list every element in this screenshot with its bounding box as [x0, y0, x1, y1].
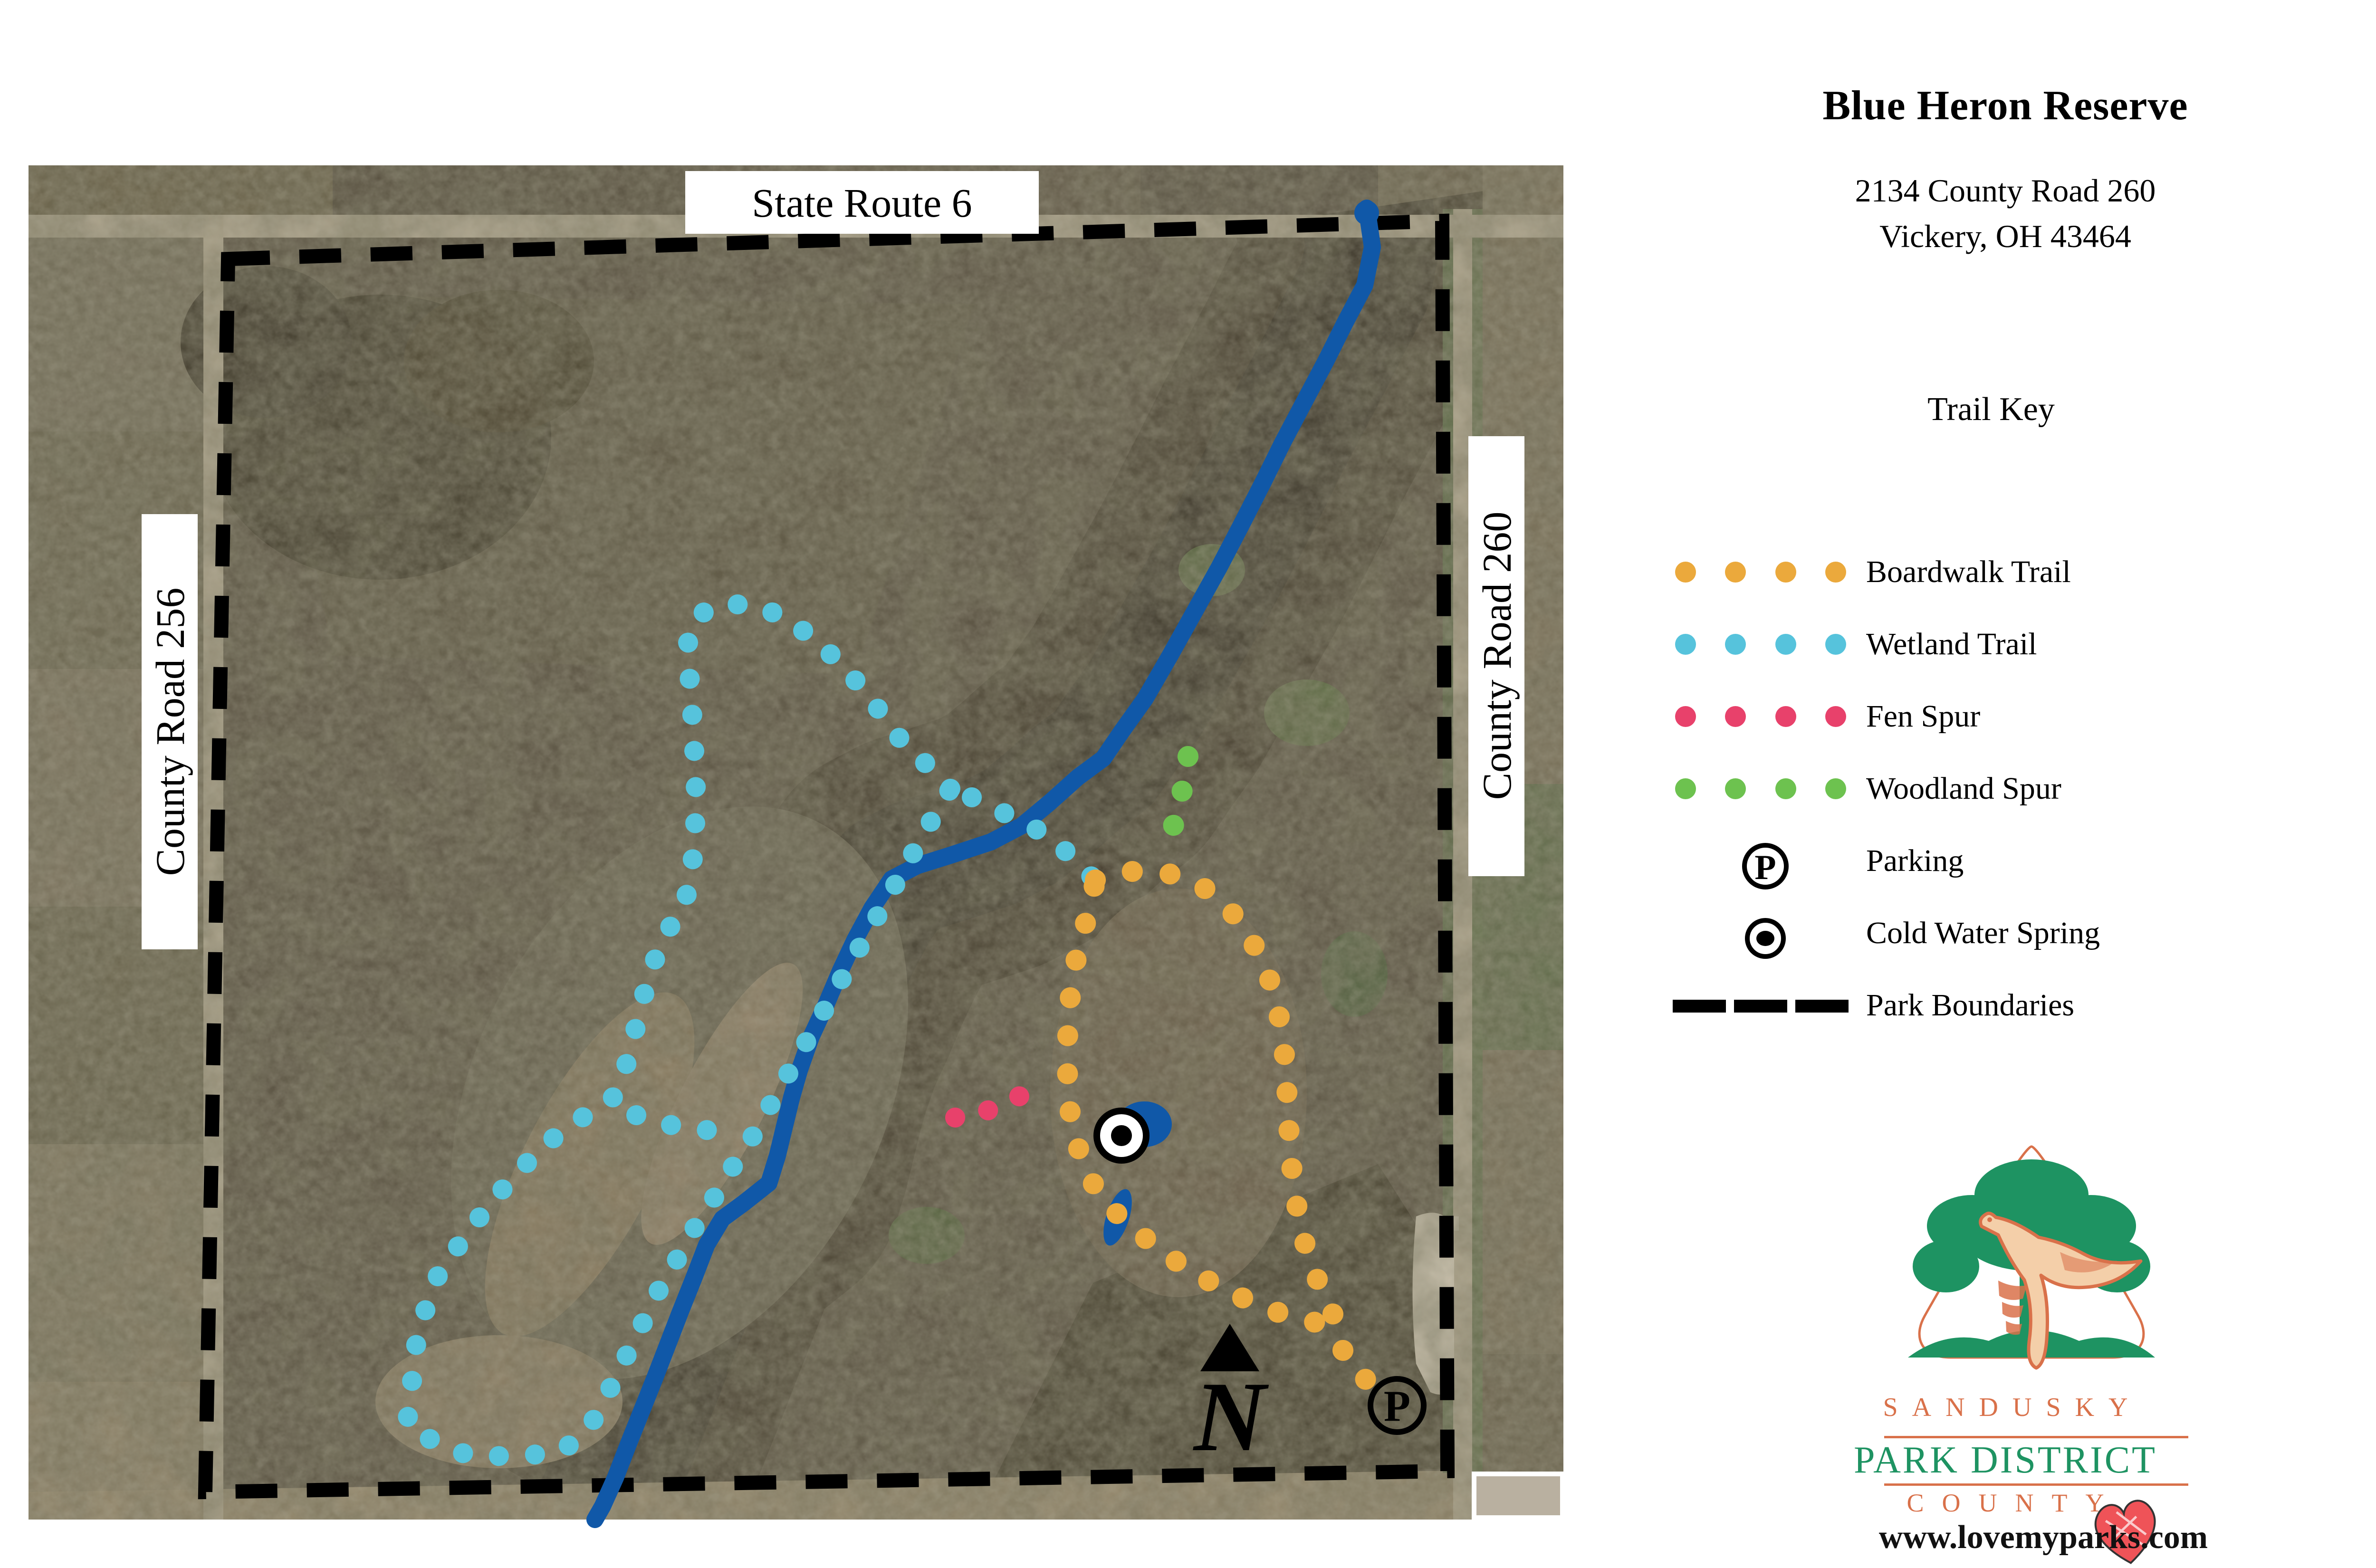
trail-map-page: P N State Route 6 County Road 256 County… — [0, 0, 2376, 1568]
svg-text:N: N — [1193, 1362, 1269, 1472]
road-label-state-route-6: State Route 6 — [685, 171, 1039, 234]
legend-label: Woodland Spur — [1860, 771, 2061, 807]
woodland-dots-swatch — [1647, 774, 1860, 803]
legend-row-spring: Cold Water Spring — [1647, 897, 2376, 969]
trail-key-title: Trail Key — [1606, 391, 2376, 429]
svg-text:P: P — [1754, 848, 1776, 887]
svg-text:County Road 260: County Road 260 — [1474, 512, 1520, 800]
boardwalk-dots-swatch — [1647, 558, 1860, 586]
legend-label: Fen Spur — [1860, 698, 1980, 735]
legend-row-fen: Fen Spur — [1647, 680, 2376, 753]
website-url: www.lovemyparks.com — [1644, 1519, 2376, 1557]
svg-text:State Route 6: State Route 6 — [752, 180, 972, 226]
legend-row-boundaries: Park Boundaries — [1647, 969, 2376, 1042]
legend-label: Cold Water Spring — [1860, 915, 2100, 951]
legend-label: Boardwalk Trail — [1860, 554, 2071, 590]
legend-row-boardwalk: Boardwalk Trail — [1647, 536, 2376, 608]
page-title: Blue Heron Reserve — [1606, 82, 2376, 130]
park-district-logo — [1879, 1138, 2184, 1395]
legend-row-woodland: Woodland Spur — [1647, 753, 2376, 825]
legend-label: Park Boundaries — [1860, 987, 2074, 1023]
wetland-dots-swatch — [1647, 630, 1860, 659]
legend-label: Wetland Trail — [1860, 626, 2037, 662]
logo-divider — [1884, 1483, 2188, 1486]
svg-text:County Road 256: County Road 256 — [147, 588, 193, 876]
logo-park-district-text: PARK DISTRICT — [1606, 1439, 2376, 1482]
road-label-county-road-256: County Road 256 — [142, 514, 198, 949]
address-line1: 2134 County Road 260 — [1606, 172, 2376, 210]
legend-row-wetland: Wetland Trail — [1647, 608, 2376, 680]
trail-key-legend: Boardwalk Trail Wetland Trail Fen Spur W… — [1647, 536, 2376, 1042]
parking-legend-icon: P — [1647, 847, 1860, 875]
address-line2: Vickery, OH 43464 — [1606, 218, 2376, 255]
logo-divider — [1884, 1436, 2188, 1438]
logo-county-text: COUNTY — [1606, 1488, 2376, 1518]
road-label-county-road-260: County Road 260 — [1468, 436, 1524, 876]
boundary-dashes-swatch — [1647, 991, 1860, 1020]
cold-water-spring-icon — [1097, 1111, 1146, 1160]
svg-text:P: P — [1384, 1382, 1410, 1430]
spring-legend-icon — [1647, 919, 1860, 947]
logo-sandusky-text: SANDUSKY — [1606, 1392, 2376, 1423]
legend-label: Parking — [1860, 843, 1964, 879]
fen-dots-swatch — [1647, 702, 1860, 731]
photo-corner-patch — [1474, 1474, 1562, 1518]
legend-row-parking: P Parking — [1647, 825, 2376, 897]
